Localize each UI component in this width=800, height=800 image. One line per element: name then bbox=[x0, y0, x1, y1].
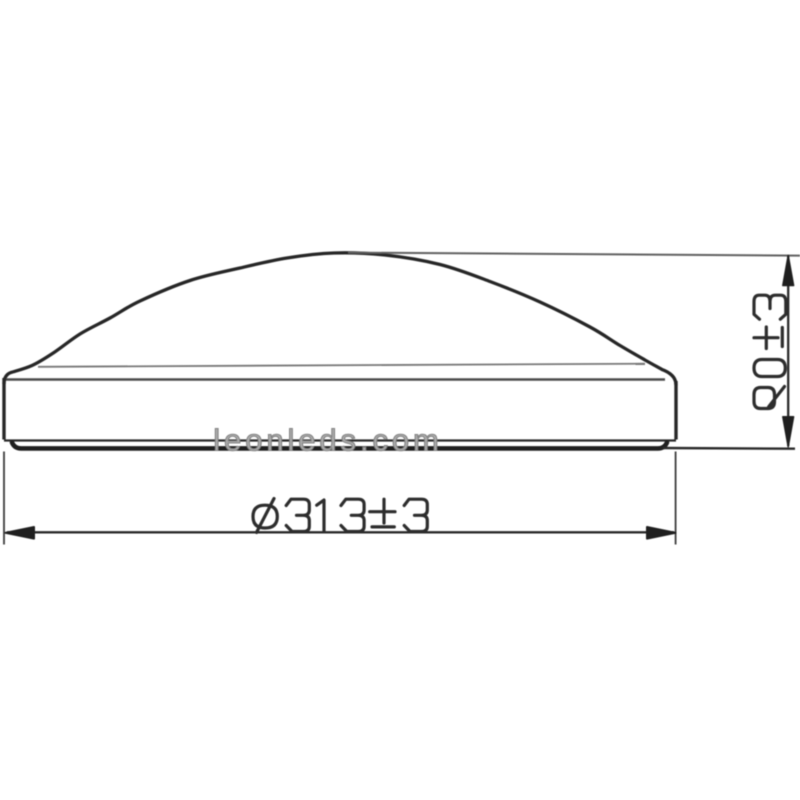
svg-text:leonleds.com: leonleds.com bbox=[213, 423, 442, 458]
